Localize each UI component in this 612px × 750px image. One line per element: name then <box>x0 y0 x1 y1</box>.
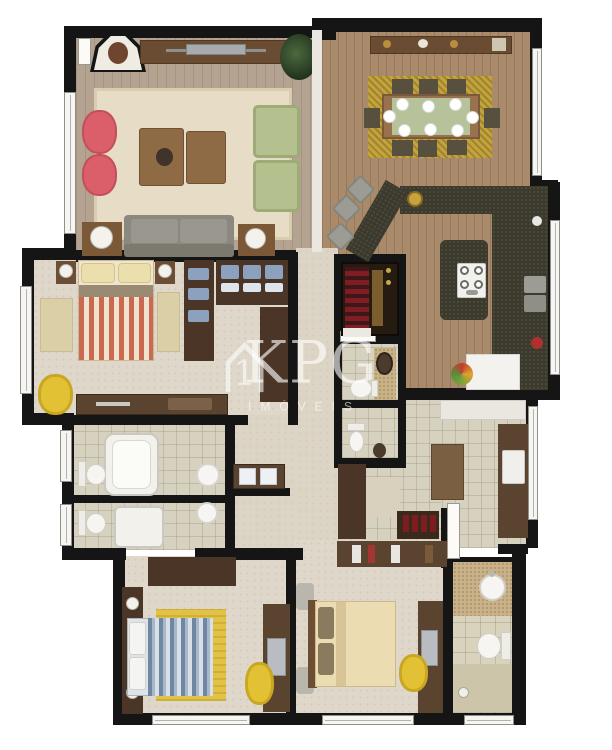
hanging-shirt-1 <box>352 545 361 563</box>
bedroom1-window <box>20 286 32 394</box>
dining-chair-6 <box>447 140 467 155</box>
sofa-cushion-2 <box>180 219 227 243</box>
table-lamp-2 <box>245 228 266 249</box>
burner-5 <box>466 290 478 295</box>
wall-segment <box>64 26 322 38</box>
bath3-toilet-tank <box>501 632 511 660</box>
bed2-pillow-1 <box>129 622 146 655</box>
service-door <box>447 503 460 559</box>
wardrobe-tall <box>338 464 366 539</box>
plate-8 <box>466 111 479 124</box>
bed1-rug-right <box>157 292 180 352</box>
wall-segment <box>22 415 248 425</box>
bathtub-inner <box>112 440 151 489</box>
bed2-pillow-2 <box>129 657 146 690</box>
closet1-towel-2 <box>243 265 261 279</box>
bathB-toilet-tank <box>78 510 86 536</box>
laundry-window <box>528 406 538 520</box>
entry-door <box>78 38 91 65</box>
bathA-sink <box>196 463 220 487</box>
table-lamp-1 <box>90 226 113 249</box>
bathA-toilet-tank <box>78 461 86 487</box>
armchair-green-2 <box>253 160 300 212</box>
corridor-floor <box>296 248 338 556</box>
wine-counter-ledge <box>343 328 371 337</box>
sideboard-item-2 <box>418 39 428 48</box>
hanging-shirt-2 <box>368 545 375 563</box>
shower-drain <box>458 687 469 698</box>
bathroomA-window <box>60 430 72 482</box>
bathB-toilet-bowl <box>86 513 106 534</box>
bar-sink <box>407 191 423 207</box>
lavabo1-toilet-bowl <box>350 379 372 398</box>
wall-segment <box>398 254 406 468</box>
sofa-cushion-1 <box>131 219 178 243</box>
wine-rack <box>345 267 369 330</box>
entry-decor <box>108 42 128 64</box>
wine-shelf-gold <box>372 270 383 326</box>
dining-window <box>532 48 542 176</box>
wall-face <box>312 30 322 252</box>
dining-chair-3 <box>447 79 466 95</box>
plate-4 <box>398 124 411 137</box>
counter-appliance-2 <box>524 295 546 312</box>
closet1-linen-1 <box>188 268 209 280</box>
minibar-bottle-3 <box>421 515 427 532</box>
bath3-toilet-bowl <box>477 633 501 659</box>
chair-yellow-3 <box>399 654 428 692</box>
plate-5 <box>424 123 437 136</box>
laundry-cabinet <box>431 444 464 500</box>
burner-2 <box>474 266 483 275</box>
armchair-pink-1 <box>82 110 117 154</box>
bed1-cover <box>79 297 153 360</box>
bed1-lamp-1 <box>59 264 73 278</box>
living-window <box>64 92 76 234</box>
bathroom3-window <box>464 715 514 725</box>
sideboard-item-4 <box>492 38 506 51</box>
plate-3 <box>449 98 462 111</box>
chair-yellow-1 <box>38 374 73 415</box>
kettle-red <box>531 337 543 349</box>
tv <box>186 44 246 55</box>
floor-plan-image: 1 KPG IMÓVEIS <box>0 0 612 750</box>
wall-segment <box>22 248 76 260</box>
plate-1 <box>396 98 409 111</box>
bed1-pillow-2 <box>118 263 151 283</box>
bed1-lamp-2 <box>158 264 172 278</box>
dining-chair-1 <box>392 79 413 95</box>
wine-handle-2 <box>386 280 391 285</box>
cube-shelf <box>366 477 400 517</box>
lavabo2-sink <box>373 443 386 458</box>
bed1-fold <box>79 285 153 297</box>
burner-1 <box>460 266 469 275</box>
sofa-back <box>124 244 234 257</box>
wall-segment <box>228 488 290 496</box>
closet1-towel-4 <box>221 283 239 292</box>
lavabo1-sink <box>376 352 393 375</box>
dresser1-items <box>168 398 212 410</box>
bedroom3-window <box>322 715 414 725</box>
dining-chair-4 <box>392 140 413 156</box>
bed1-rug-left <box>40 298 73 352</box>
counter-appliance-1 <box>524 276 546 293</box>
burner-4 <box>474 280 483 289</box>
plate-6 <box>451 124 464 137</box>
dining-chair-2 <box>419 79 438 95</box>
armchair-green-1 <box>253 105 300 158</box>
minibar-bottle-1 <box>403 515 409 532</box>
bathroomB-window <box>60 504 72 546</box>
bath3-sink <box>479 574 506 601</box>
hanging-shirt-3 <box>391 545 400 563</box>
bath3-faucet <box>489 571 495 577</box>
sideboard-item-1 <box>383 40 391 48</box>
plate-2 <box>422 100 435 113</box>
closet1-linen-2 <box>188 288 209 300</box>
closet1-linen-3 <box>188 310 209 322</box>
lavabo2-toilet-bowl <box>349 431 364 452</box>
counter-decor-white <box>532 216 542 226</box>
burner-3 <box>460 280 469 289</box>
wall-segment <box>498 544 528 554</box>
closet1-towel-6 <box>265 283 283 292</box>
wardrobe2 <box>148 557 236 586</box>
dining-chair-5 <box>418 140 437 157</box>
shower-base-b <box>114 506 164 548</box>
minibar-bottle-2 <box>412 515 418 532</box>
bed3-pillow-1 <box>318 607 334 639</box>
bathB-sink <box>196 502 218 524</box>
fruit-bowl <box>451 363 473 385</box>
dresser1-handle <box>96 402 130 406</box>
towel-2 <box>260 468 277 485</box>
wine-handle-1 <box>386 268 391 273</box>
coffee-table-decor <box>156 148 173 166</box>
laundry-counter-top <box>440 400 526 420</box>
bed3-fold <box>336 602 346 686</box>
bed2-cover <box>148 618 213 696</box>
wall-segment <box>512 544 526 725</box>
wall-segment <box>312 18 542 32</box>
bed3-pillow-2 <box>318 643 334 675</box>
lavabo1-toilet-tank <box>371 380 378 397</box>
kitchen-table-white <box>466 354 520 390</box>
bed1-pillow-1 <box>81 263 115 283</box>
dining-chair-8 <box>484 108 500 128</box>
closet1-towel-3 <box>265 265 283 279</box>
lavabo2-toilet-tank <box>347 423 365 431</box>
hanging-shirt-4 <box>425 545 433 563</box>
minibar-bottle-4 <box>430 515 436 532</box>
bedroom2-window <box>152 715 250 725</box>
sideboard-item-3 <box>450 40 458 48</box>
sideboard <box>370 36 512 54</box>
wall-segment <box>443 557 453 725</box>
dining-chair-7 <box>364 108 380 128</box>
armchair-pink-2 <box>82 154 117 196</box>
bathA-toilet-bowl <box>86 464 106 485</box>
headboard-knob-1 <box>126 597 139 610</box>
towel-1 <box>239 468 256 485</box>
coffee-table-2 <box>186 131 226 184</box>
wall-segment <box>334 400 406 408</box>
wall-segment <box>288 252 298 425</box>
plate-7 <box>383 110 396 123</box>
chair-yellow-2 <box>245 662 274 705</box>
closet1-towel-1 <box>221 265 239 279</box>
kitchen-window <box>550 220 560 375</box>
closet1-towel-5 <box>243 283 261 292</box>
closet1-right <box>260 307 288 402</box>
laundry-sink <box>502 450 525 484</box>
